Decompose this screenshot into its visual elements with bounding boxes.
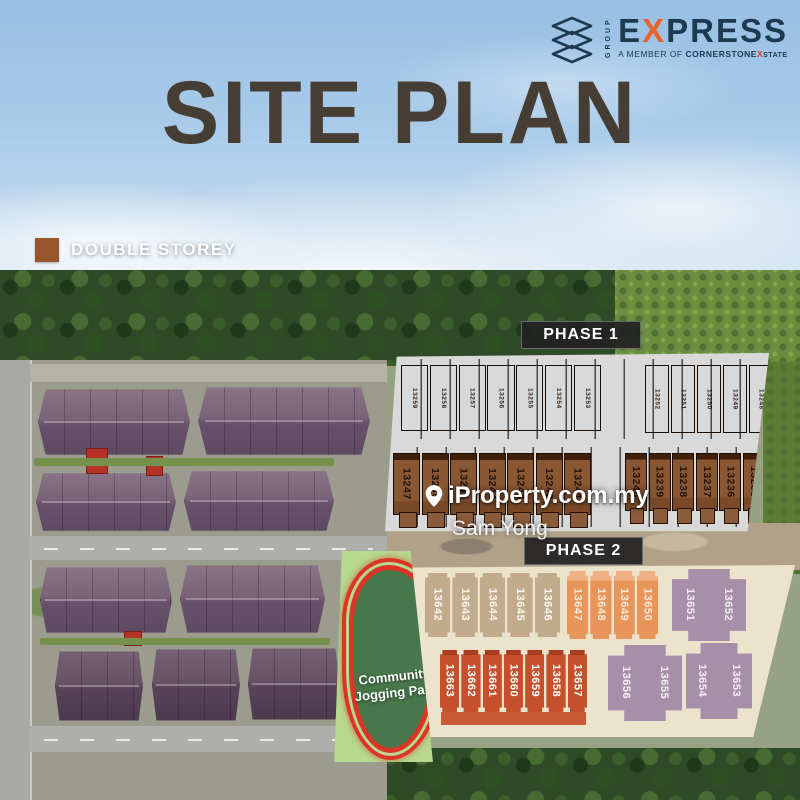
lot-13661: 13661 [483, 650, 502, 712]
lot-13642: 13642 [425, 573, 450, 637]
lot-13651: 13651 [672, 569, 708, 641]
lot-number: 13235 [748, 466, 760, 498]
lot-13249: 13249 [723, 365, 747, 433]
site-plan-image: GROUP EXPRESS A MEMBER OF CORNERSTONEXST… [0, 0, 800, 800]
semi-d-house [152, 648, 240, 722]
parking-strip [30, 364, 387, 382]
lot-13652: 13652 [710, 569, 746, 641]
legend: DOUBLE STOREY [35, 238, 237, 262]
member-company: CORNERSTONE [686, 49, 757, 59]
location-pin-icon [424, 484, 444, 508]
lot-number: 13659 [529, 664, 541, 697]
lot-13252: 13252 [645, 365, 669, 433]
brand-name-post: PRESS [666, 12, 788, 49]
brand-name: EXPRESS [618, 14, 788, 47]
lot-13646: 13646 [535, 573, 560, 637]
lot-13658: 13658 [546, 650, 565, 712]
terrace-row [180, 564, 325, 634]
lot-13236: 13236 [719, 453, 741, 511]
lot-number: 13651 [684, 588, 696, 621]
lot-number: 13654 [696, 664, 708, 697]
lot-13257: 13257 [459, 365, 486, 431]
stacked-boxes-icon [545, 14, 599, 66]
lot-13656: 13656 [608, 645, 644, 721]
lot-number: 13663 [444, 664, 456, 697]
lot-13662: 13662 [461, 650, 480, 712]
phase2-label: PHASE 2 [524, 537, 643, 565]
lot-13663: 13663 [440, 650, 459, 712]
horizontal-road-2 [30, 726, 387, 752]
lot-13645: 13645 [507, 573, 532, 637]
lot-number: 13649 [618, 588, 630, 621]
semi-d-house [55, 650, 143, 722]
lot-13237: 13237 [696, 453, 718, 511]
lot-number: 13254 [555, 388, 562, 409]
lot-number: 13642 [432, 588, 444, 621]
lot-13251: 13251 [671, 365, 695, 433]
lot-number: 13645 [514, 588, 526, 621]
lot-number: 13252 [654, 389, 661, 410]
member-suffix: STATE [763, 52, 787, 59]
phase2-semi-d-top: 1365113652 [672, 569, 746, 641]
lot-13239: 13239 [649, 453, 671, 511]
phase2-plat: 1364213643136441364513646 13647136481364… [398, 565, 795, 737]
lot-number: 13239 [654, 466, 666, 498]
lot-number: 13658 [550, 664, 562, 697]
palm-plantation [615, 270, 800, 367]
lot-13655: 13655 [646, 645, 682, 721]
lot-number: 13647 [572, 588, 584, 621]
lot-13657: 13657 [568, 650, 587, 712]
lot-13255: 13255 [516, 365, 543, 431]
member-pre: A MEMBER OF [618, 49, 685, 59]
phase1-top-left-block: 13259132581325713256132551325413253 [401, 365, 601, 431]
lot-number: 13247 [401, 468, 413, 500]
lot-13648: 13648 [590, 571, 611, 639]
lot-number: 13259 [411, 388, 418, 409]
page-title: SITE PLAN [0, 66, 800, 160]
phase2-semi-d-bottom-2: 1365413653 [686, 643, 752, 719]
semi-d-house [248, 647, 340, 721]
lot-number: 13653 [730, 664, 742, 697]
lot-number: 13648 [595, 588, 607, 621]
lot-number: 13662 [465, 664, 477, 697]
terrace-row [38, 388, 190, 456]
lot-number: 13657 [571, 664, 583, 697]
lot-number: 13253 [584, 388, 591, 409]
lot-13258: 13258 [430, 365, 457, 431]
grass-strip [34, 458, 334, 466]
lot-number: 13655 [658, 666, 670, 699]
lot-13235: 13235 [743, 453, 765, 511]
lot-13247: 13247 [393, 453, 420, 515]
watermark-text: iProperty.com.my [448, 482, 649, 510]
lot-13644: 13644 [480, 573, 505, 637]
horizontal-road-1 [30, 536, 387, 560]
watermark-agent-name: Sam Yong [452, 517, 548, 541]
phase1-label: PHASE 1 [521, 321, 641, 349]
brand-name-pre: E [618, 12, 642, 49]
vertical-road [0, 360, 32, 800]
aerial-photo: PHASE 1 13259132581325713256132551325413… [0, 270, 800, 800]
lot-13653: 13653 [720, 643, 752, 719]
brand-name-x: X [642, 12, 666, 49]
phase2-red-block: 13663136621366113660136591365813657 [440, 650, 587, 712]
lot-number: 13251 [680, 389, 687, 410]
lot-number: 13661 [486, 664, 498, 697]
lot-13647: 13647 [567, 571, 588, 639]
lot-number: 13256 [497, 388, 504, 409]
terrace-row [36, 472, 176, 532]
lot-number: 13255 [526, 388, 533, 409]
legend-label: DOUBLE STOREY [71, 240, 237, 260]
terrace-row [184, 470, 334, 532]
lot-number: 13237 [701, 466, 713, 498]
lot-number: 13257 [469, 388, 476, 409]
lot-number: 13258 [440, 388, 447, 409]
lot-13650: 13650 [637, 571, 658, 639]
lot-13659: 13659 [525, 650, 544, 712]
lot-number: 13249 [731, 389, 738, 410]
phase2-orange-block: 13647136481364913650 [567, 571, 658, 639]
lot-13254: 13254 [545, 365, 572, 431]
brand-logo: GROUP EXPRESS A MEMBER OF CORNERSTONEXST… [545, 14, 788, 66]
lot-number: 13646 [541, 588, 553, 621]
lot-13660: 13660 [504, 650, 523, 712]
lot-13256: 13256 [487, 365, 514, 431]
phase2-semi-d-bottom-1: 1365613655 [608, 645, 682, 721]
lot-13643: 13643 [452, 573, 477, 637]
watermark: iProperty.com.my [424, 482, 649, 510]
lot-number: 13656 [620, 666, 632, 699]
terrace-row [40, 566, 172, 634]
lot-number: 13236 [724, 466, 736, 498]
lot-number: 13650 [641, 588, 653, 621]
legend-color-swatch [35, 238, 59, 262]
grass-strip [40, 638, 330, 645]
lot-13649: 13649 [614, 571, 635, 639]
lot-number: 13250 [706, 389, 713, 410]
lot-13259: 13259 [401, 365, 428, 431]
lot-13654: 13654 [686, 643, 718, 719]
phase1-top-right-block: 1325213251132501324913248 [645, 365, 773, 433]
lot-number: 13660 [507, 664, 519, 697]
phase2-tan-block: 1364213643136441364513646 [425, 573, 560, 637]
lot-number: 13644 [487, 588, 499, 621]
terrace-row [198, 386, 370, 456]
lot-13250: 13250 [697, 365, 721, 433]
lot-13238: 13238 [672, 453, 694, 511]
brand-group-label: GROUP [605, 14, 612, 62]
lot-number: 13652 [722, 588, 734, 621]
existing-estate [0, 360, 387, 800]
brand-name-block: EXPRESS A MEMBER OF CORNERSTONEXSTATE [618, 14, 788, 59]
lot-13253: 13253 [574, 365, 601, 431]
brand-member-line: A MEMBER OF CORNERSTONEXSTATE [618, 50, 788, 59]
lot-number: 13643 [459, 588, 471, 621]
lot-number: 13238 [677, 466, 689, 498]
